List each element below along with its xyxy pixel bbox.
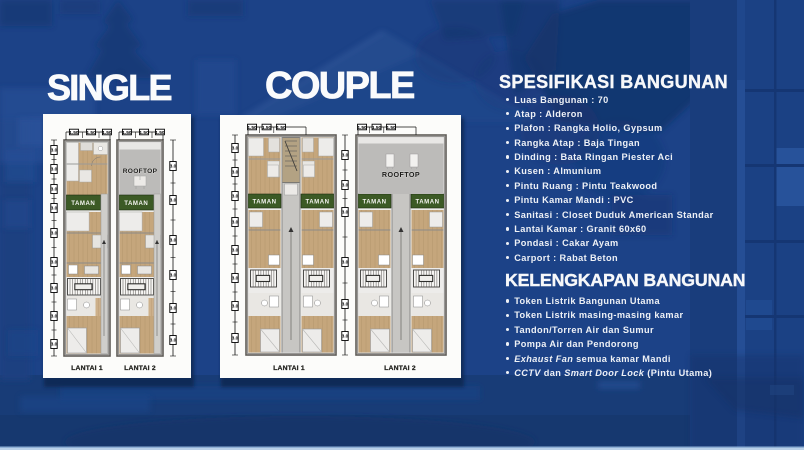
svg-text:LANTAI 2: LANTAI 2 [124,365,156,372]
svg-text:1.50: 1.50 [139,130,149,136]
svg-text:ROOFTOP: ROOFTOP [123,168,158,175]
svg-text:TAMAN: TAMAN [252,199,276,206]
svg-text:LANTAI 2: LANTAI 2 [384,365,416,372]
svg-text:LANTAI 1: LANTAI 1 [273,365,305,372]
svg-text:3.0: 3.0 [170,164,177,169]
svg-text:3.0: 3.0 [51,231,58,236]
svg-text:1.50: 1.50 [276,125,286,131]
svg-text:3.0: 3.0 [232,248,239,253]
svg-text:1.50: 1.50 [372,125,382,131]
svg-text:3.0: 3.0 [51,187,58,192]
svg-text:3.0: 3.0 [232,336,239,341]
svg-text:3.0: 3.0 [51,286,58,291]
svg-text:3.0: 3.0 [232,276,239,281]
svg-text:3.0: 3.0 [342,153,349,158]
svg-text:1.50: 1.50 [102,130,112,136]
svg-text:TAMAN: TAMAN [71,200,95,207]
svg-text:1.50: 1.50 [155,130,165,136]
svg-text:3.0: 3.0 [51,260,58,265]
svg-text:3.0: 3.0 [232,170,239,175]
svg-text:LANTAI 1: LANTAI 1 [71,365,103,372]
svg-text:TAMAN: TAMAN [305,199,329,206]
svg-text:3.0: 3.0 [342,302,349,307]
svg-text:1.50: 1.50 [262,125,272,131]
svg-text:TAMAN: TAMAN [415,199,439,206]
svg-text:1.50: 1.50 [386,125,396,131]
svg-text:3.0: 3.0 [51,206,58,211]
svg-text:1.50: 1.50 [122,130,132,136]
svg-text:3.0: 3.0 [170,306,177,311]
svg-text:1.50: 1.50 [86,130,96,136]
svg-text:3.0: 3.0 [170,198,177,203]
svg-text:3.0: 3.0 [51,148,58,153]
svg-text:3.0: 3.0 [342,183,349,188]
svg-text:ROOFTOP: ROOFTOP [382,170,420,179]
svg-text:3.0: 3.0 [342,210,349,215]
svg-text:3.0: 3.0 [232,146,239,151]
svg-text:3.0: 3.0 [232,194,239,199]
svg-text:3.0: 3.0 [170,338,177,343]
svg-text:TAMAN: TAMAN [124,200,148,207]
svg-text:1.50: 1.50 [247,125,257,131]
svg-text:3.0: 3.0 [51,167,58,172]
svg-text:3.0: 3.0 [51,314,58,319]
svg-text:1.50: 1.50 [69,130,79,136]
svg-text:3.0: 3.0 [232,220,239,225]
svg-text:3.0: 3.0 [342,260,349,265]
svg-text:3.0: 3.0 [232,304,239,309]
svg-text:3.0: 3.0 [51,342,58,347]
svg-text:1.50: 1.50 [357,125,367,131]
svg-text:3.0: 3.0 [170,238,177,243]
svg-text:3.0: 3.0 [170,273,177,278]
svg-text:TAMAN: TAMAN [362,199,386,206]
svg-text:3.0: 3.0 [342,334,349,339]
